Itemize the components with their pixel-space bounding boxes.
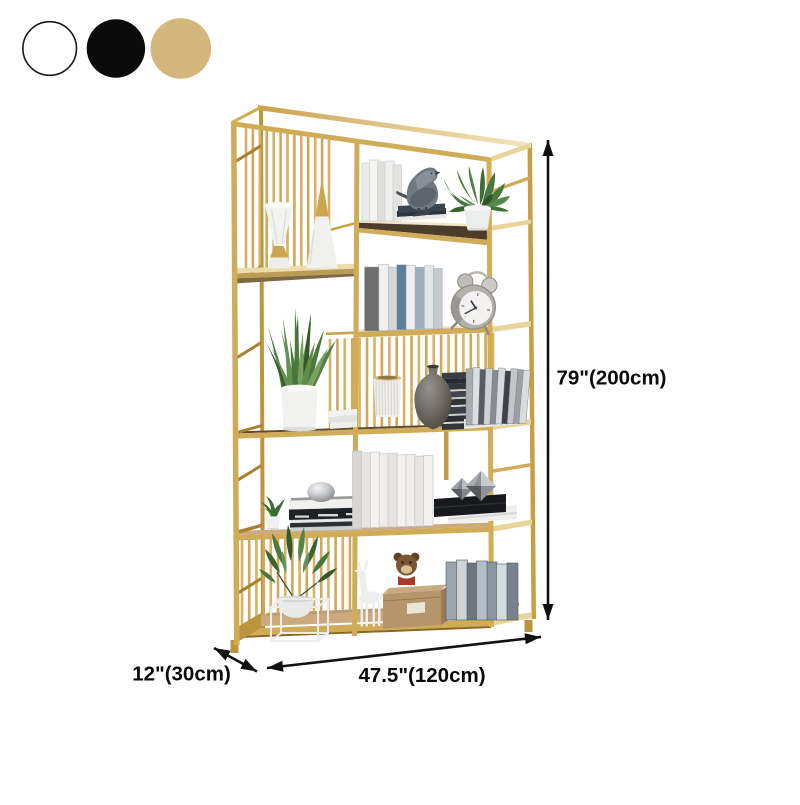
svg-text:12"(30cm): 12"(30cm)	[132, 663, 231, 686]
svg-text:47.5"(120cm): 47.5"(120cm)	[358, 664, 485, 687]
svg-text:79"(200cm): 79"(200cm)	[557, 367, 667, 390]
